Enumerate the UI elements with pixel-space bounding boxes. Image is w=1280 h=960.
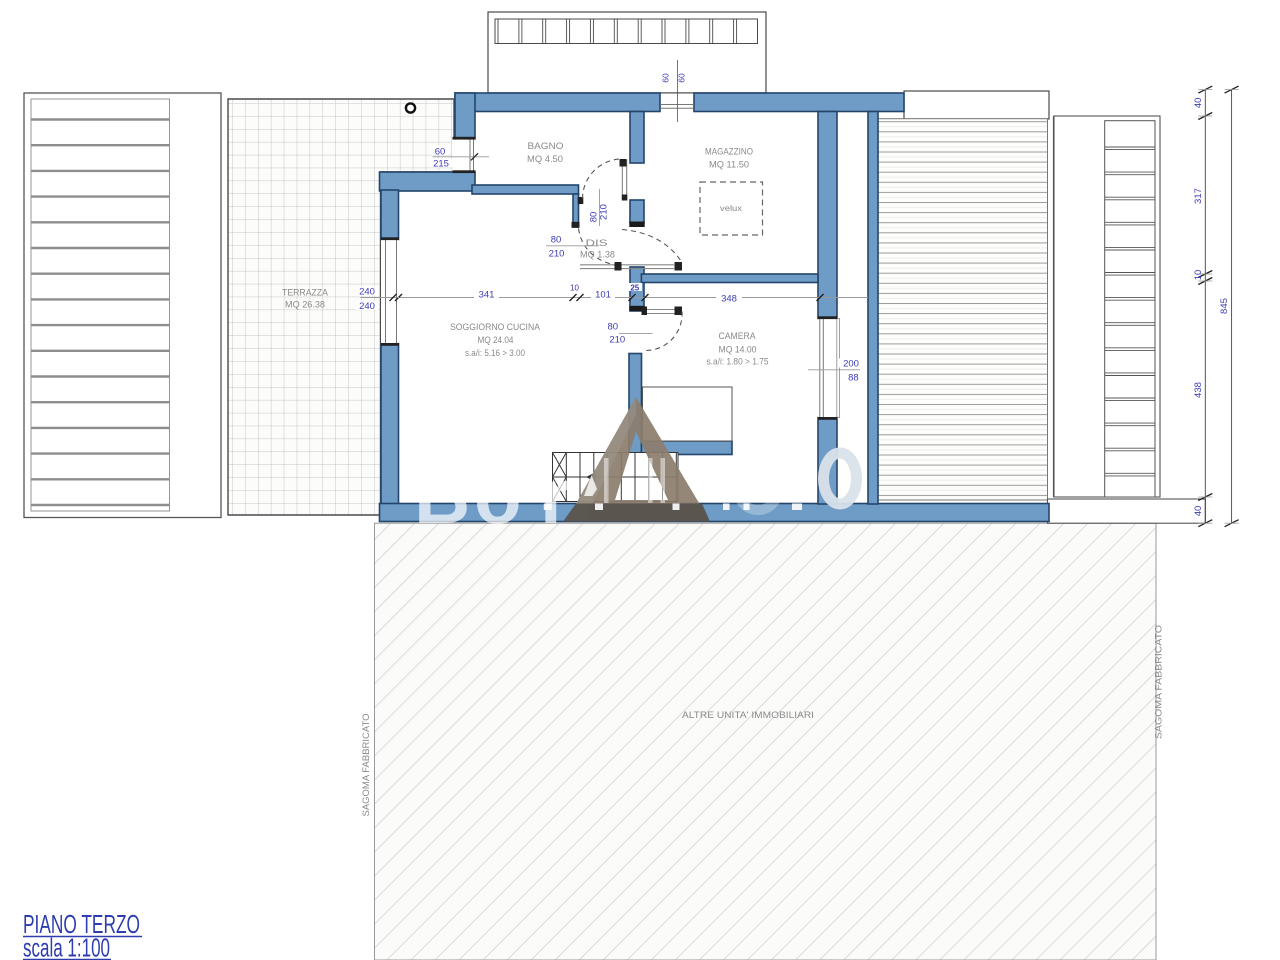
svg-text:60: 60 [661, 73, 671, 83]
svg-text:s.a/i: 1.80 > 1.75: s.a/i: 1.80 > 1.75 [707, 357, 769, 367]
svg-text:DIS: DIS [586, 238, 608, 248]
svg-text:MQ 4.50: MQ 4.50 [527, 154, 563, 164]
svg-text:velux: velux [720, 203, 743, 213]
svg-text:210: 210 [549, 249, 565, 260]
svg-text:MQ 14.00: MQ 14.00 [719, 345, 757, 355]
svg-text:BAGNO: BAGNO [528, 141, 564, 151]
svg-text:845: 845 [1219, 298, 1230, 314]
svg-text:240: 240 [359, 301, 375, 312]
svg-text:348: 348 [721, 293, 737, 304]
svg-text:60: 60 [435, 147, 446, 158]
svg-text:SAGOMA FABBRICATO: SAGOMA FABBRICATO [361, 714, 371, 817]
svg-text:438: 438 [1193, 382, 1204, 398]
svg-text:101: 101 [595, 289, 611, 300]
svg-text:210: 210 [609, 335, 625, 346]
svg-text:MQ 24.04: MQ 24.04 [478, 335, 514, 345]
svg-text:B: B [414, 452, 470, 540]
svg-text:r: r [540, 452, 570, 540]
svg-text:210: 210 [598, 204, 609, 220]
svg-text:scala 1:100: scala 1:100 [23, 933, 110, 960]
svg-text:80: 80 [551, 235, 562, 246]
svg-text:ALTRE UNITA' IMMOBILIARI: ALTRE UNITA' IMMOBILIARI [682, 710, 814, 720]
svg-text:SOGGIORNO CUCINA: SOGGIORNO CUCINA [450, 322, 541, 332]
svg-text:s.a/i: 5.16 > 3.00: s.a/i: 5.16 > 3.00 [465, 348, 525, 358]
svg-text:MQ 11.50: MQ 11.50 [709, 160, 749, 170]
svg-text:10: 10 [1193, 270, 1204, 281]
svg-text:200: 200 [843, 359, 859, 370]
svg-text:341: 341 [479, 289, 495, 300]
svg-text:CAMERA: CAMERA [719, 331, 757, 341]
svg-text:MQ 1.38: MQ 1.38 [580, 250, 615, 260]
svg-text:25: 25 [630, 284, 639, 293]
svg-text:o: o [474, 452, 522, 540]
svg-text:80: 80 [608, 322, 619, 333]
svg-text:317: 317 [1193, 188, 1204, 204]
svg-text:40: 40 [1193, 506, 1204, 517]
svg-text:MAGAZZINO: MAGAZZINO [705, 147, 753, 157]
svg-text:TERRAZZA: TERRAZZA [282, 288, 329, 298]
svg-text:88: 88 [848, 373, 859, 384]
svg-text:40: 40 [1193, 98, 1204, 109]
svg-text:215: 215 [433, 159, 449, 170]
svg-text:240: 240 [359, 287, 375, 298]
svg-text:10: 10 [570, 284, 579, 293]
svg-text:SAGOMA FABBRICATO: SAGOMA FABBRICATO [1154, 625, 1164, 739]
svg-text:60: 60 [676, 73, 686, 83]
svg-text:MQ 26.38: MQ 26.38 [285, 300, 325, 310]
